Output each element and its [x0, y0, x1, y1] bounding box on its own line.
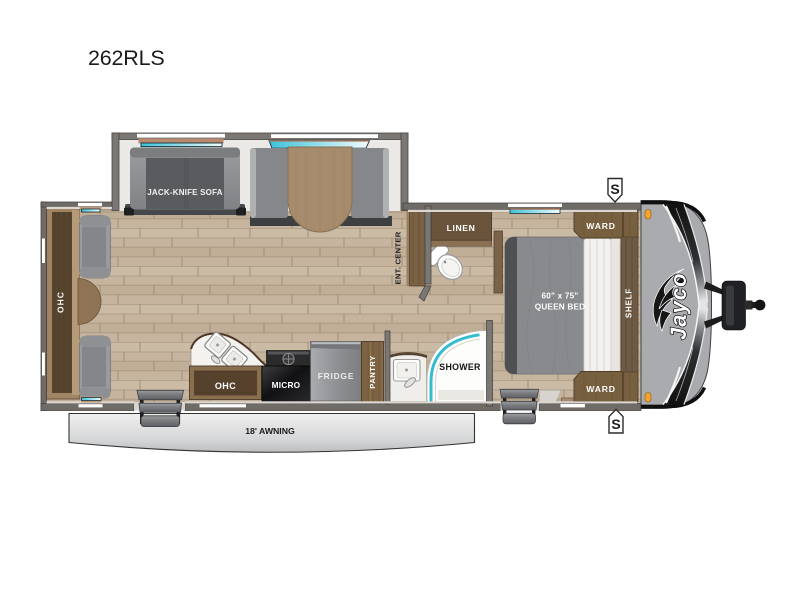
svg-text:ENT. CENTER: ENT. CENTER	[394, 231, 403, 284]
svg-text:QUEEN BED: QUEEN BED	[535, 303, 585, 312]
svg-text:18' AWNING: 18' AWNING	[245, 426, 295, 436]
svg-text:FRIDGE: FRIDGE	[318, 371, 354, 381]
svg-text:60" x 75": 60" x 75"	[542, 292, 579, 301]
svg-text:WARD: WARD	[586, 221, 615, 231]
svg-text:OHC: OHC	[215, 381, 236, 391]
svg-text:SHELF: SHELF	[625, 288, 634, 318]
svg-text:S: S	[610, 181, 619, 197]
svg-text:262RLS: 262RLS	[88, 46, 165, 70]
svg-text:JACK-KNIFE SOFA: JACK-KNIFE SOFA	[147, 188, 222, 197]
svg-text:MICRO: MICRO	[272, 380, 301, 390]
svg-text:SHOWER: SHOWER	[439, 362, 481, 372]
svg-text:OHC: OHC	[56, 291, 66, 313]
svg-text:WARD: WARD	[586, 384, 615, 394]
svg-text:LINEN: LINEN	[447, 223, 476, 233]
svg-text:PANTRY: PANTRY	[368, 355, 377, 388]
svg-text:S: S	[611, 416, 620, 432]
svg-text:Jayco: Jayco	[666, 273, 691, 340]
